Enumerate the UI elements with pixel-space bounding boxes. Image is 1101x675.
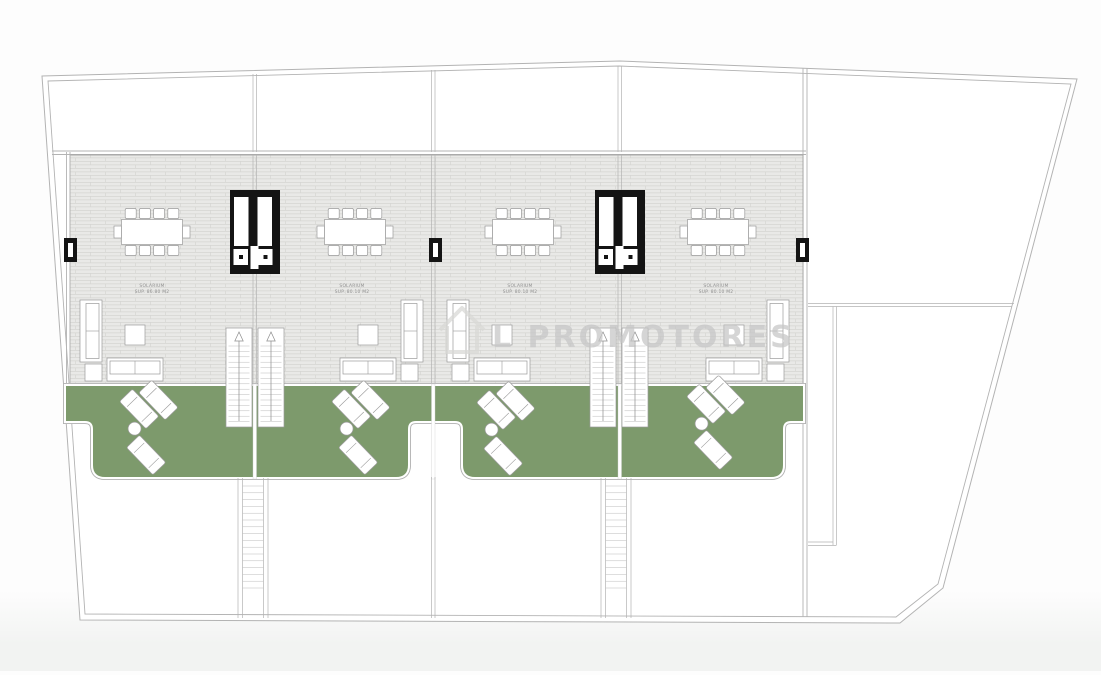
roof-solarium-floor-plan: SOLARIUM SUP. 86.80 M2 SOLARIUM SUP. 80.…	[0, 0, 1101, 671]
unit-3-room-label: SOLARIUM	[507, 283, 532, 289]
unit-1-area-label: SUP. 86.80 M2	[135, 289, 170, 295]
unit-2-area-label: SUP. 80.10 M2	[335, 289, 370, 295]
stair-shaft-block-right	[595, 190, 645, 274]
unit-3-area-label: SUP. 80.10 M2	[503, 289, 538, 295]
window-marker-middle-wall	[429, 238, 442, 262]
window-marker-left-wall	[64, 238, 77, 262]
stair-shaft-block-left	[230, 190, 280, 274]
unit-4-area-label: SUP. 80.10 M2	[699, 289, 734, 295]
window-marker-right-wall	[796, 238, 809, 262]
unit-1-room-label: SOLARIUM	[139, 283, 164, 289]
unit-4-room-label: SOLARIUM	[703, 283, 728, 289]
floor-plan-page: SOLARIUM SUP. 86.80 M2 SOLARIUM SUP. 80.…	[0, 0, 1101, 675]
stairs-unit-1	[226, 328, 252, 427]
stairs-unit-2	[258, 328, 284, 427]
unit-2-room-label: SOLARIUM	[339, 283, 364, 289]
watermark-text: L PROMOTORES	[492, 320, 795, 355]
